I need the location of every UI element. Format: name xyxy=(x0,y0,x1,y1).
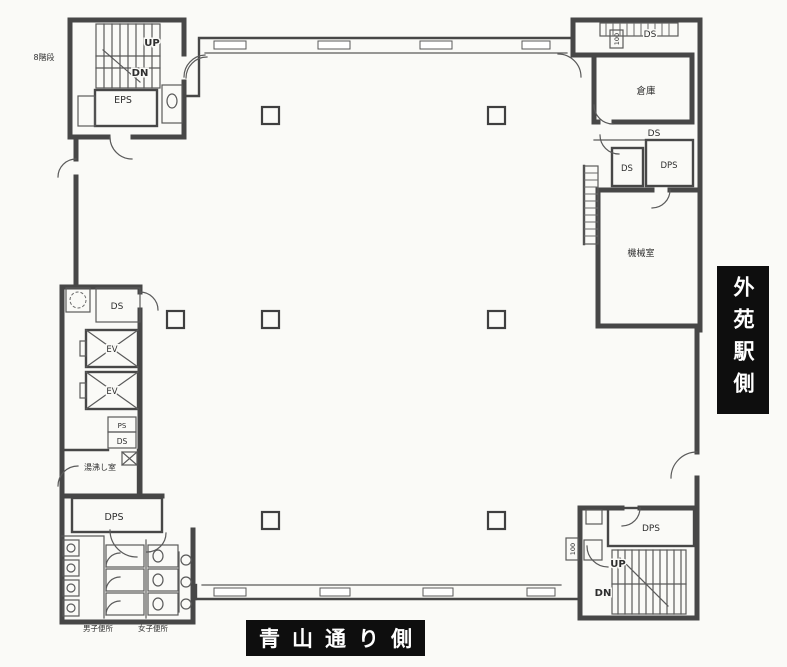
dps-bottom-left-label: DPS xyxy=(104,512,123,523)
floor-plan-page: UP DN EPS 8階段 100 DS 倉庫 DS DS DPS 機械室 DP… xyxy=(0,0,787,667)
stair-up-label: UP xyxy=(610,559,625,570)
staircase-top-left: UP DN EPS xyxy=(78,24,182,126)
duct-size-bottom-label: 100 xyxy=(569,543,577,555)
elevator-2-label: EV xyxy=(106,387,117,397)
structural-columns xyxy=(167,107,505,529)
warehouse-area: 100 DS 倉庫 DS DS DPS xyxy=(594,23,693,186)
elevator-core: DS EV EV PS DS 湯沸し室 xyxy=(62,288,140,496)
street-label-aoyama-dori-side: 青山通り側 xyxy=(246,620,425,656)
warehouse-label: 倉庫 xyxy=(636,85,656,97)
machine-room-label: 機械室 xyxy=(627,247,654,259)
stair-note-label: 8階段 xyxy=(33,52,54,62)
ds-small-label: DS xyxy=(117,437,128,446)
ds-core-label: DS xyxy=(111,302,124,312)
ds-room-label: DS xyxy=(621,164,633,174)
toilet-block: DPS 男子便所 女子便所 xyxy=(62,498,191,633)
eps-shaft-label: EPS xyxy=(114,95,132,106)
dps-top-right-label: DPS xyxy=(660,161,677,171)
stair-down-label: DN xyxy=(132,68,149,79)
mens-toilet-label: 男子便所 xyxy=(83,623,113,633)
floor-plan-drawing: UP DN EPS 8階段 100 DS 倉庫 DS DS DPS 機械室 DP… xyxy=(0,0,787,667)
street-label-gaien-station-side: 外苑駅側 xyxy=(717,266,769,414)
dps-bottom-right-label: DPS xyxy=(642,524,660,534)
duct-size-top-label: 100 xyxy=(613,33,621,45)
stair-up-label: UP xyxy=(144,38,159,49)
womens-toilet-label: 女子便所 xyxy=(138,623,168,633)
ds-corridor-label: DS xyxy=(648,129,661,139)
ps-shaft-label: PS xyxy=(118,422,127,430)
elevator-1-label: EV xyxy=(106,345,117,355)
ds-top-label: DS xyxy=(644,30,657,40)
stair-down-label: DN xyxy=(595,588,612,599)
door-swings xyxy=(58,54,697,567)
kitchenette-label: 湯沸し室 xyxy=(84,462,116,472)
